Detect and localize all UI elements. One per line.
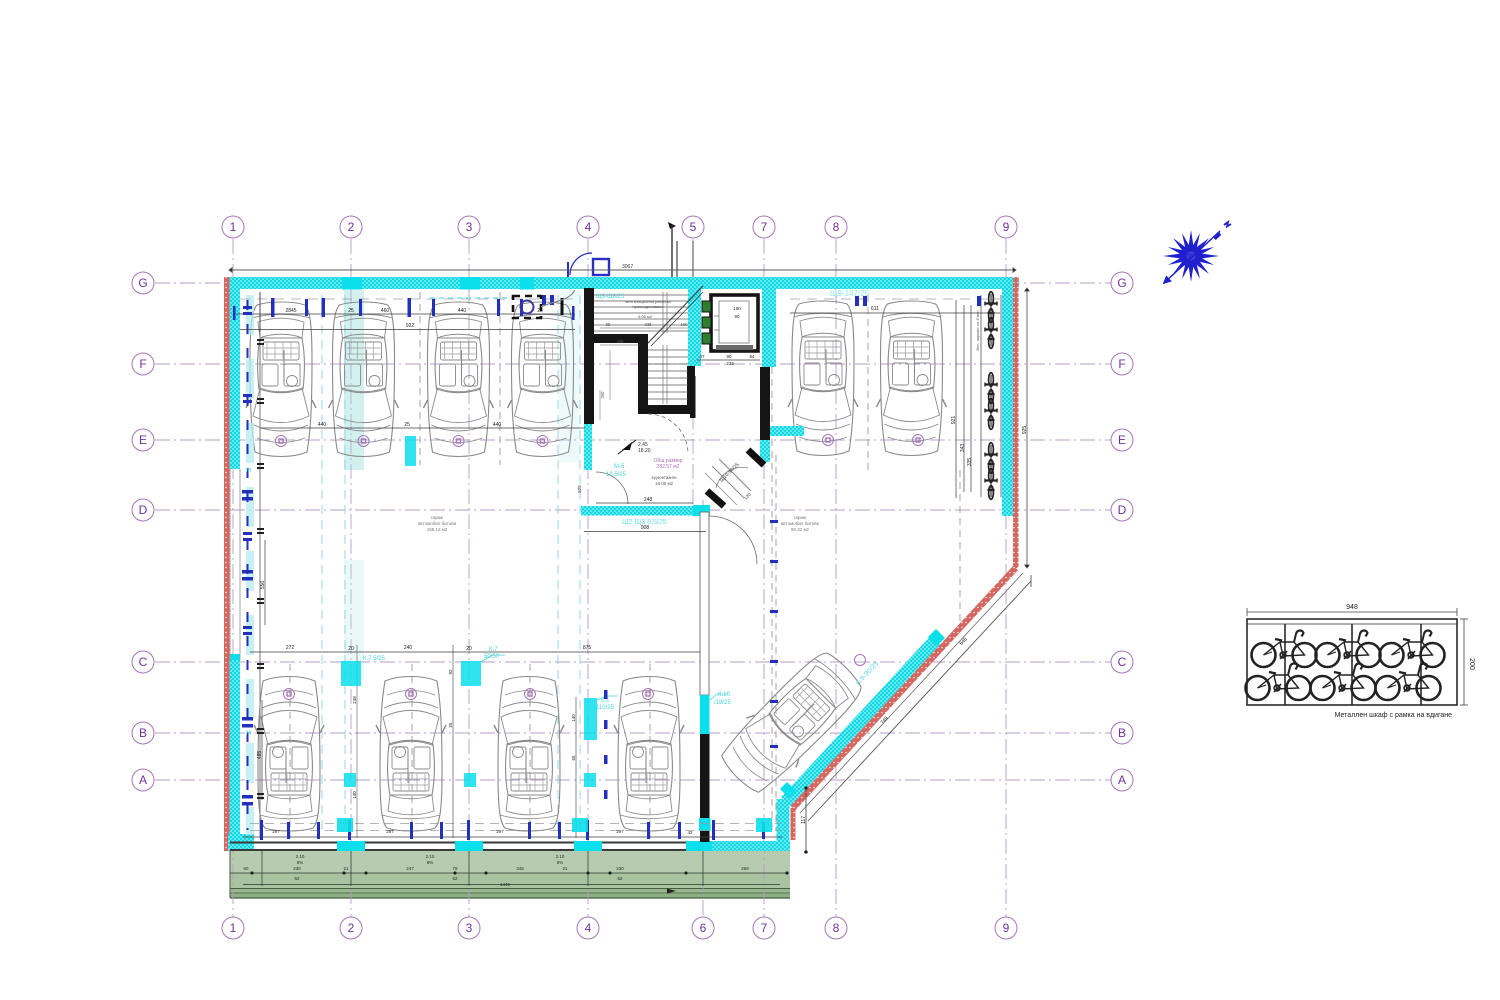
svg-text:C: C xyxy=(139,655,148,669)
svg-text:20: 20 xyxy=(348,646,354,652)
svg-text:556: 556 xyxy=(260,581,266,590)
svg-text:248: 248 xyxy=(352,696,357,704)
svg-text:2.10: 2.10 xyxy=(296,854,305,859)
svg-text:1: 1 xyxy=(230,921,237,935)
svg-text:20: 20 xyxy=(466,646,472,652)
svg-text:240: 240 xyxy=(404,645,413,651)
svg-text:М-5: М-5 xyxy=(614,464,625,470)
svg-text:50/50: 50/50 xyxy=(484,654,500,660)
svg-text:47: 47 xyxy=(699,354,705,359)
svg-text:E: E xyxy=(1118,433,1126,447)
svg-text:7: 7 xyxy=(761,921,768,935)
svg-text:921: 921 xyxy=(951,416,957,425)
svg-text:925: 925 xyxy=(1022,426,1028,435)
svg-text:8: 8 xyxy=(833,921,840,935)
svg-text:М: М xyxy=(246,731,251,737)
svg-text:Металлен шкаф с рамка на вдига: Металлен шкаф с рамка на вдигане xyxy=(1335,712,1452,719)
svg-text:9: 9 xyxy=(1003,921,1010,935)
svg-text:5: 5 xyxy=(690,220,697,234)
svg-text:Щ3-Щ8/25: Щ3-Щ8/25 xyxy=(596,294,625,300)
svg-text:автомобил битови: автомобил битови xyxy=(781,521,820,526)
svg-text:E: E xyxy=(139,433,147,447)
svg-text:230: 230 xyxy=(293,866,301,871)
svg-text:B: B xyxy=(1118,726,1126,740)
svg-text:79: 79 xyxy=(452,866,458,871)
svg-text:140: 140 xyxy=(352,791,357,799)
svg-text:9: 9 xyxy=(1003,220,1010,234)
svg-text:297: 297 xyxy=(386,829,394,834)
svg-text:922: 922 xyxy=(406,323,415,329)
svg-text:92: 92 xyxy=(448,669,453,675)
svg-text:282.57 м2: 282.57 м2 xyxy=(657,464,680,470)
svg-text:875: 875 xyxy=(583,645,592,651)
svg-text:611: 611 xyxy=(871,306,879,312)
svg-text:8%: 8% xyxy=(297,860,304,865)
svg-text:19.5/25: 19.5/25 xyxy=(606,472,627,478)
svg-text:247: 247 xyxy=(406,866,414,871)
svg-text:297: 297 xyxy=(272,829,280,834)
svg-text:7: 7 xyxy=(761,220,768,234)
svg-text:117: 117 xyxy=(801,816,807,824)
svg-text:18.00 м2: 18.00 м2 xyxy=(655,481,674,486)
svg-text:F: F xyxy=(1118,357,1125,371)
svg-text:18.20: 18.20 xyxy=(638,448,651,454)
svg-text:62: 62 xyxy=(452,876,458,881)
svg-text:25: 25 xyxy=(404,422,410,428)
svg-text:338: 338 xyxy=(617,339,625,344)
svg-text:62: 62 xyxy=(294,876,300,881)
svg-text:A: A xyxy=(1118,773,1126,787)
svg-text:2845: 2845 xyxy=(285,308,296,314)
svg-text:343: 343 xyxy=(960,444,966,453)
svg-text:230: 230 xyxy=(616,866,624,871)
svg-text:6: 6 xyxy=(700,921,707,935)
svg-text:90.32 м2: 90.32 м2 xyxy=(791,527,810,532)
svg-text:F: F xyxy=(139,357,146,371)
svg-text:2: 2 xyxy=(348,220,355,234)
svg-text:присъединяване: присъединяване xyxy=(633,304,665,309)
svg-text:3: 3 xyxy=(466,921,473,935)
svg-text:297: 297 xyxy=(496,829,504,834)
svg-text:200: 200 xyxy=(1468,658,1475,670)
svg-text:272: 272 xyxy=(286,645,295,651)
svg-text:5.08 м2: 5.08 м2 xyxy=(638,314,653,319)
svg-text:525: 525 xyxy=(577,485,582,493)
svg-text:2: 2 xyxy=(348,921,355,935)
svg-text:110/25: 110/25 xyxy=(596,705,615,711)
svg-text:G: G xyxy=(138,276,147,290)
svg-text:2.10: 2.10 xyxy=(426,854,435,859)
svg-text:D: D xyxy=(139,503,148,517)
svg-text:140: 140 xyxy=(571,714,576,722)
svg-text:К.10: К.10 xyxy=(718,692,730,698)
svg-text:D: D xyxy=(1118,503,1127,517)
svg-text:автомобил битови: автомобил битови xyxy=(418,521,457,526)
svg-text:160: 160 xyxy=(733,306,741,311)
svg-text:269: 269 xyxy=(741,866,749,871)
svg-text:90: 90 xyxy=(734,314,740,319)
svg-text:25: 25 xyxy=(348,308,354,314)
svg-text:8: 8 xyxy=(833,220,840,234)
svg-text:338: 338 xyxy=(645,322,653,327)
svg-text:460: 460 xyxy=(381,308,390,314)
svg-text:B: B xyxy=(139,726,147,740)
svg-text:4: 4 xyxy=(585,220,592,234)
svg-text:М: М xyxy=(246,468,251,474)
svg-text:155.12 м2: 155.12 м2 xyxy=(427,527,448,532)
svg-text:1: 1 xyxy=(230,220,237,234)
svg-text:440: 440 xyxy=(318,422,327,428)
svg-text:60: 60 xyxy=(243,866,249,871)
svg-text:42: 42 xyxy=(687,830,693,835)
svg-text:440: 440 xyxy=(493,422,502,428)
svg-text:гараж: гараж xyxy=(794,515,806,520)
svg-text:65: 65 xyxy=(571,755,576,761)
svg-text:4: 4 xyxy=(585,921,592,935)
svg-text:G: G xyxy=(1117,276,1126,290)
svg-text:/19/25: /19/25 xyxy=(714,700,731,706)
svg-text:95: 95 xyxy=(606,322,611,327)
svg-text:3067: 3067 xyxy=(622,264,633,270)
svg-text:100: 100 xyxy=(681,322,689,327)
svg-text:248: 248 xyxy=(644,497,653,503)
svg-text:485: 485 xyxy=(257,751,263,760)
svg-text:54: 54 xyxy=(749,354,755,359)
svg-text:8%: 8% xyxy=(427,860,434,865)
svg-text:297: 297 xyxy=(616,829,624,834)
svg-text:908: 908 xyxy=(641,525,650,531)
svg-text:440: 440 xyxy=(458,308,467,314)
svg-text:Вел. паркинг на 6 вел.: Вел. паркинг на 6 вел. xyxy=(975,309,980,350)
svg-text:335: 335 xyxy=(967,458,973,467)
svg-text:едноетажен: едноетажен xyxy=(652,475,677,480)
svg-text:8%: 8% xyxy=(557,860,564,865)
svg-text:A: A xyxy=(139,773,147,787)
svg-text:3: 3 xyxy=(466,220,473,234)
svg-text:62: 62 xyxy=(617,876,623,881)
svg-text:948: 948 xyxy=(1346,604,1358,611)
svg-text:21: 21 xyxy=(562,866,568,871)
svg-text:К.7: К.7 xyxy=(489,647,498,653)
svg-text:345: 345 xyxy=(516,866,524,871)
svg-text:223: 223 xyxy=(726,361,734,366)
svg-text:C: C xyxy=(1118,655,1127,669)
svg-text:гараж: гараж xyxy=(431,515,443,520)
svg-text:К.7 5/25: К.7 5/25 xyxy=(363,656,386,662)
svg-text:260: 260 xyxy=(600,391,605,399)
svg-text:21: 21 xyxy=(343,866,349,871)
svg-text:2.10: 2.10 xyxy=(556,854,565,859)
svg-text:25: 25 xyxy=(448,722,453,728)
svg-text:90: 90 xyxy=(726,354,732,359)
